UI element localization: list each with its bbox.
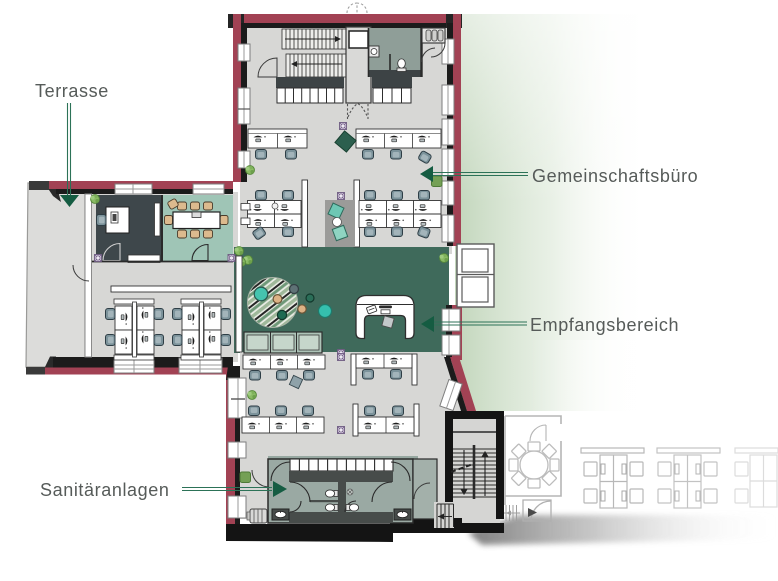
svg-text:Gemeinschaftsbüro: Gemeinschaftsbüro: [532, 166, 698, 186]
svg-text:Terrasse: Terrasse: [35, 81, 109, 101]
svg-text:Empfangsbereich: Empfangsbereich: [530, 315, 679, 335]
svg-text:Sanitäranlagen: Sanitäranlagen: [40, 480, 170, 500]
